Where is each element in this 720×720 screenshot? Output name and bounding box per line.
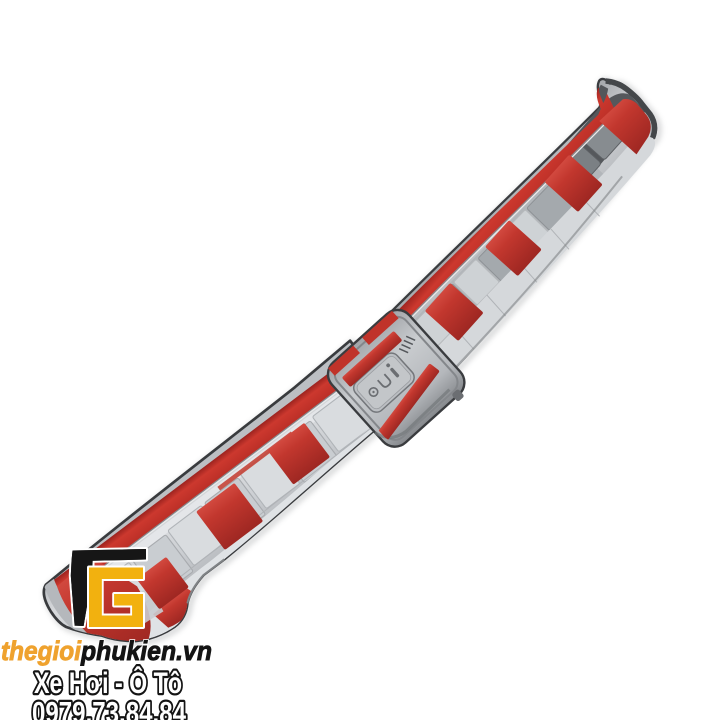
svg-text:thegioi: thegioi — [1, 636, 81, 666]
svg-text:0979.73.84.84: 0979.73.84.84 — [32, 695, 187, 720]
svg-text:phukien.vn: phukien.vn — [80, 636, 212, 666]
